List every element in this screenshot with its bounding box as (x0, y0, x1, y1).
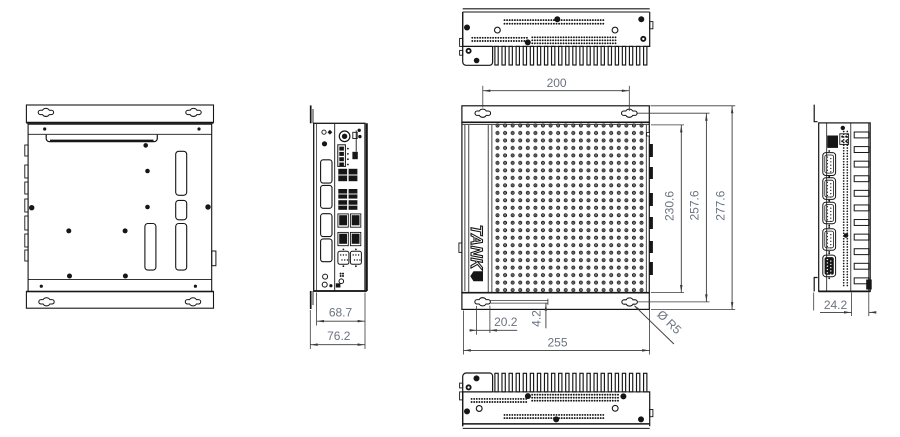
svg-text:230.6: 230.6 (663, 191, 677, 221)
svg-text:76.2: 76.2 (327, 329, 351, 343)
svg-text:TANK: TANK (467, 225, 485, 271)
svg-text:68.7: 68.7 (329, 306, 353, 320)
svg-text:200: 200 (547, 76, 567, 90)
svg-text:24.2: 24.2 (824, 298, 848, 312)
svg-text:277.6: 277.6 (713, 190, 727, 220)
svg-text:4.2: 4.2 (530, 310, 544, 327)
svg-text:20.2: 20.2 (494, 315, 518, 329)
svg-text:255: 255 (547, 335, 567, 349)
svg-text:257.6: 257.6 (688, 190, 702, 220)
